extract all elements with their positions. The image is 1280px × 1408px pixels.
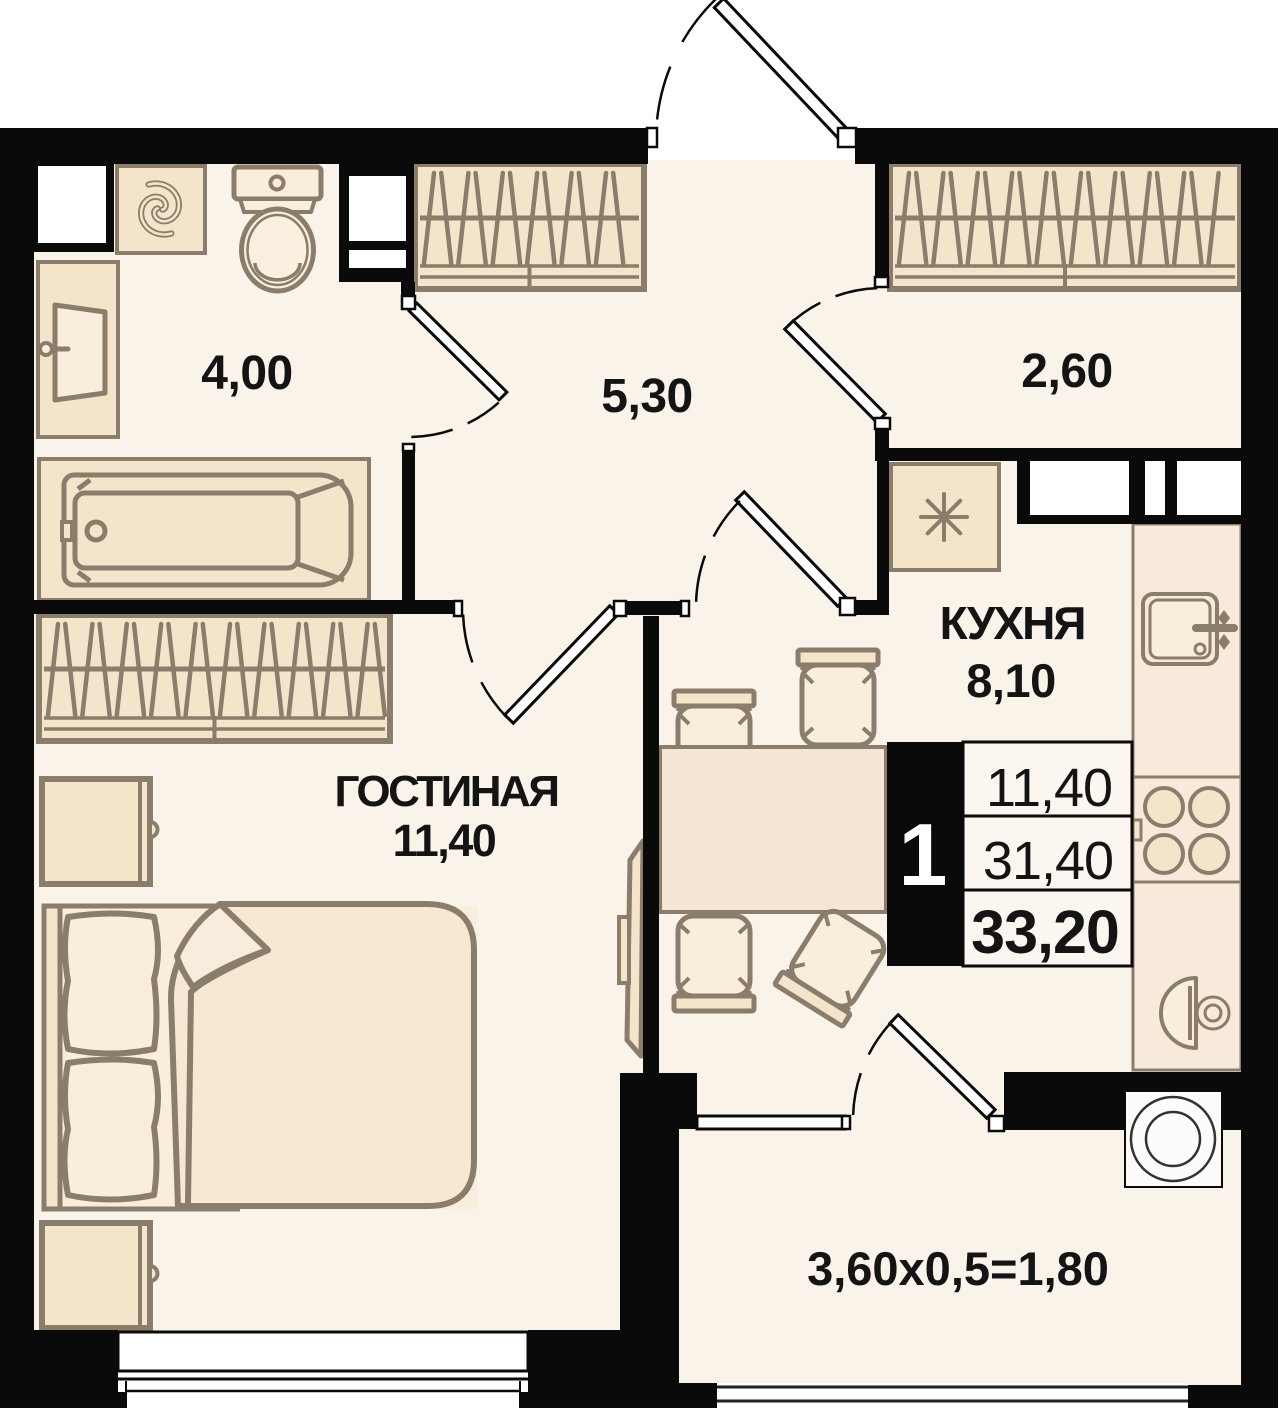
svg-text:33,20: 33,20 <box>971 898 1119 966</box>
svg-text:4,00: 4,00 <box>201 347 292 400</box>
svg-text:31,40: 31,40 <box>983 831 1113 891</box>
svg-text:5,30: 5,30 <box>601 370 692 423</box>
svg-text:ГОСТИНАЯ: ГОСТИНАЯ <box>335 767 558 816</box>
svg-text:3,60х0,5=1,80: 3,60х0,5=1,80 <box>807 1242 1109 1295</box>
svg-text:2,60: 2,60 <box>1021 345 1112 398</box>
svg-text:11,40: 11,40 <box>393 815 496 866</box>
svg-text:8,10: 8,10 <box>966 654 1055 707</box>
svg-text:КУХНЯ: КУХНЯ <box>940 597 1085 649</box>
svg-text:1: 1 <box>899 805 948 904</box>
svg-text:11,40: 11,40 <box>986 758 1112 818</box>
